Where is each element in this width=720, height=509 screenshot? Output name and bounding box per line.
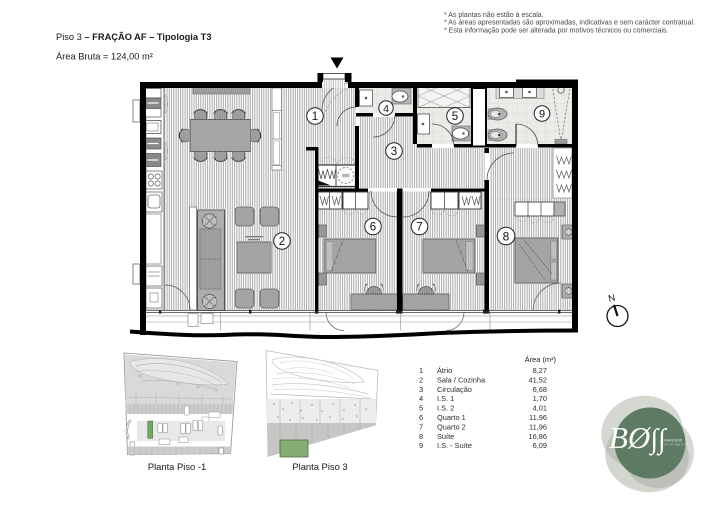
svg-text:3: 3 — [419, 385, 423, 394]
svg-text:1,70: 1,70 — [533, 394, 547, 403]
svg-text:Quarto 2: Quarto 2 — [437, 422, 466, 431]
svg-text:5: 5 — [452, 111, 458, 123]
svg-text:Planta Piso -1: Planta Piso -1 — [148, 461, 206, 472]
svg-text:7: 7 — [419, 422, 423, 431]
svg-text:BØ∫∫: BØ∫∫ — [609, 420, 668, 456]
svg-text:9: 9 — [419, 441, 423, 450]
svg-text:6: 6 — [419, 413, 423, 422]
svg-text:4,01: 4,01 — [533, 404, 547, 413]
svg-text:GARDENS: GARDENS — [664, 439, 683, 443]
svg-text:2: 2 — [279, 236, 285, 248]
svg-text:I.S. - Suíte: I.S. - Suíte — [437, 441, 472, 450]
svg-text:* As áreas apresentadas são ap: * As áreas apresentadas são aproximadas,… — [444, 20, 695, 27]
svg-text:Planta Piso 3: Planta Piso 3 — [292, 461, 347, 472]
svg-text:8: 8 — [503, 230, 510, 244]
svg-text:Circulação: Circulação — [437, 385, 472, 394]
svg-text:6,09: 6,09 — [533, 441, 547, 450]
svg-text:41,52: 41,52 — [529, 375, 548, 384]
svg-text:11,96: 11,96 — [529, 413, 547, 422]
svg-text:2: 2 — [419, 375, 423, 384]
svg-text:Suíte: Suíte — [437, 432, 454, 441]
svg-text:8,27: 8,27 — [533, 366, 547, 375]
svg-text:4: 4 — [419, 394, 423, 403]
svg-text:3: 3 — [391, 146, 397, 158]
svg-text:4: 4 — [383, 103, 389, 115]
svg-text:I.S. 1: I.S. 1 — [437, 394, 454, 403]
svg-text:1: 1 — [419, 366, 423, 375]
svg-text:11,96: 11,96 — [529, 422, 547, 431]
svg-text:16,86: 16,86 — [529, 432, 548, 441]
svg-text:I.S. 2: I.S. 2 — [437, 404, 454, 413]
svg-text:Átrio: Átrio — [437, 366, 452, 375]
svg-text:Quarto 1: Quarto 1 — [437, 413, 466, 422]
svg-text:7: 7 — [416, 222, 422, 234]
svg-text:6,68: 6,68 — [533, 385, 547, 394]
svg-text:Área (m²): Área (m²) — [525, 355, 556, 364]
svg-text:Piso 3 – FRAÇÃO AF – Tipologia: Piso 3 – FRAÇÃO AF – Tipologia T3 — [56, 32, 212, 42]
svg-text:APARTMENTS: APARTMENTS — [664, 443, 688, 447]
svg-text:8: 8 — [419, 432, 423, 441]
svg-text:* Esta informação pode ser alt: * Esta informação pode ser alterada por … — [444, 27, 669, 34]
svg-text:5: 5 — [419, 404, 423, 413]
svg-text:9: 9 — [539, 109, 545, 121]
svg-text:Sala / Cozinha: Sala / Cozinha — [437, 375, 486, 384]
svg-text:6: 6 — [370, 222, 376, 234]
svg-text:* As plantas não estão à escal: * As plantas não estão à escala. — [444, 12, 544, 19]
svg-text:1: 1 — [312, 111, 318, 123]
svg-text:Área Bruta = 124,00 m²: Área Bruta = 124,00 m² — [56, 51, 153, 61]
